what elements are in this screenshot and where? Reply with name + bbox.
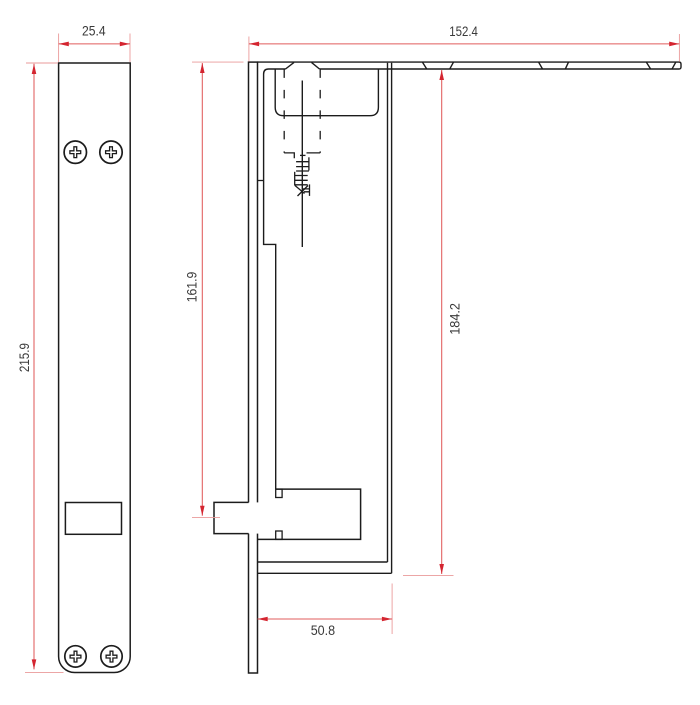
svg-text:161.9: 161.9 xyxy=(185,272,201,303)
svg-text:184.2: 184.2 xyxy=(447,303,463,335)
svg-text:25.4: 25.4 xyxy=(82,23,106,39)
svg-text:152.4: 152.4 xyxy=(449,24,478,40)
svg-text:50.8: 50.8 xyxy=(311,623,335,639)
svg-text:215.9: 215.9 xyxy=(17,343,33,372)
